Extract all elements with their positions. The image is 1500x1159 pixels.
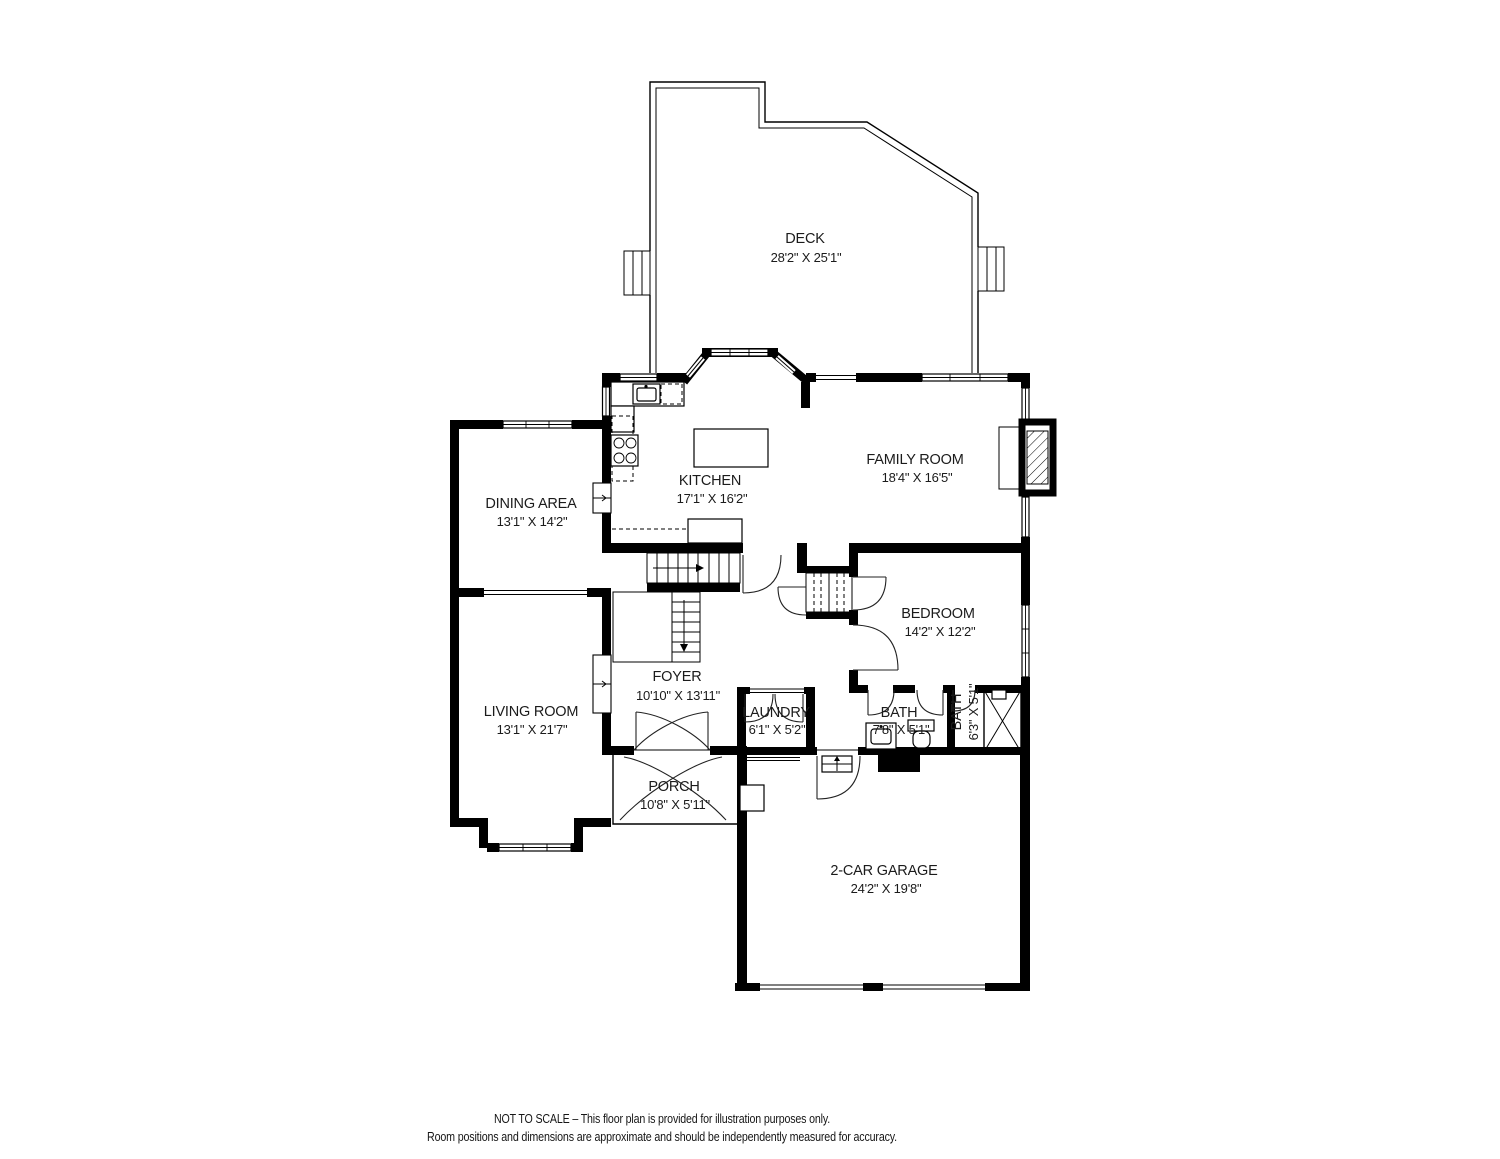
garage-door-left — [760, 985, 863, 989]
room-label-laundry: LAUNDRY — [742, 705, 810, 721]
garage-entry-steps — [822, 756, 852, 772]
footer-disclaimer: NOT TO SCALE – This floor plan is provid… — [427, 1111, 897, 1144]
footer-line1: NOT TO SCALE – This floor plan is provid… — [494, 1111, 830, 1126]
floor-plan-canvas: DECK 28'2" X 25'1" KITCHEN 17'1" X 16'2"… — [0, 0, 1500, 1159]
bedroom-closets — [806, 573, 852, 612]
room-dims-porch: 10'8" X 5'11" — [640, 797, 710, 812]
door-arc — [778, 587, 806, 615]
room-label-bath: BATH — [881, 705, 918, 721]
window — [1022, 605, 1029, 677]
kitchen-fixtures — [611, 382, 768, 543]
kitchen-sink-icon — [633, 384, 660, 404]
room-dims-deck: 28'2" X 25'1" — [771, 250, 842, 265]
room-dims-kitchen: 17'1" X 16'2" — [677, 491, 748, 506]
room-label-bedroom: BEDROOM — [901, 606, 975, 622]
double-door-arcs — [634, 712, 710, 750]
room-label-living-room: LIVING ROOM — [484, 704, 578, 720]
sliding-door — [816, 376, 860, 380]
room-dims-bath-2: 6'3" X 5'1" — [966, 683, 981, 740]
room-label-foyer: FOYER — [653, 669, 702, 685]
room-dims-bedroom: 14'2" X 12'2" — [905, 624, 976, 639]
window — [603, 387, 610, 416]
fireplace-icon — [999, 422, 1053, 493]
room-dims-bath: 7'8" X 5'1" — [873, 722, 930, 737]
cased-opening-living — [593, 655, 611, 713]
window — [1022, 388, 1029, 422]
kitchen-island — [694, 429, 768, 467]
stairs-down-arrow — [680, 644, 688, 652]
room-dims-dining-area: 13'1" X 14'2" — [497, 514, 568, 529]
window — [1022, 497, 1029, 537]
cased-opening-dining — [593, 483, 611, 513]
room-labels: DECK 28'2" X 25'1" KITCHEN 17'1" X 16'2"… — [484, 231, 981, 896]
window — [620, 374, 657, 381]
door-arc — [743, 555, 781, 593]
shower-icon — [984, 690, 1021, 752]
room-label-porch: PORCH — [648, 779, 699, 795]
chimney-block — [878, 747, 920, 772]
door-arc — [853, 625, 898, 670]
window — [499, 844, 571, 851]
room-dims-laundry: 6'1" X 5'2" — [749, 722, 806, 737]
room-label-dining-area: DINING AREA — [485, 496, 577, 512]
door-arc — [917, 690, 943, 715]
room-dims-garage: 24'2" X 19'8" — [851, 881, 922, 896]
room-dims-family-room: 18'4" X 16'5" — [882, 470, 953, 485]
deck-stairs-right-icon — [978, 247, 1004, 291]
deck-outline — [624, 82, 1004, 373]
room-dims-foyer: 10'10" X 13'11" — [636, 688, 721, 703]
kitchen-bar-counter — [688, 519, 742, 543]
footer-line2: Room positions and dimensions are approx… — [427, 1129, 897, 1144]
window — [922, 374, 1008, 381]
room-label-bath-2: BATH — [949, 694, 965, 731]
garage-door-right — [883, 985, 985, 989]
floor-plan-svg: DECK 28'2" X 25'1" KITCHEN 17'1" X 16'2"… — [0, 0, 1500, 1159]
room-label-garage: 2-CAR GARAGE — [830, 863, 938, 879]
stairs-up-arrow — [696, 564, 704, 572]
room-label-kitchen: KITCHEN — [679, 473, 741, 489]
room-label-family-room: FAMILY ROOM — [866, 452, 963, 468]
utility-box — [740, 785, 764, 811]
door-arc — [853, 577, 886, 610]
deck-stairs-left-icon — [624, 251, 650, 295]
staircase — [613, 553, 740, 662]
kitchen-bay-window — [684, 348, 808, 382]
room-label-deck: DECK — [785, 231, 825, 247]
room-dims-living-room: 13'1" X 21'7" — [497, 722, 568, 737]
window — [503, 421, 572, 428]
stove-icon — [611, 435, 638, 466]
